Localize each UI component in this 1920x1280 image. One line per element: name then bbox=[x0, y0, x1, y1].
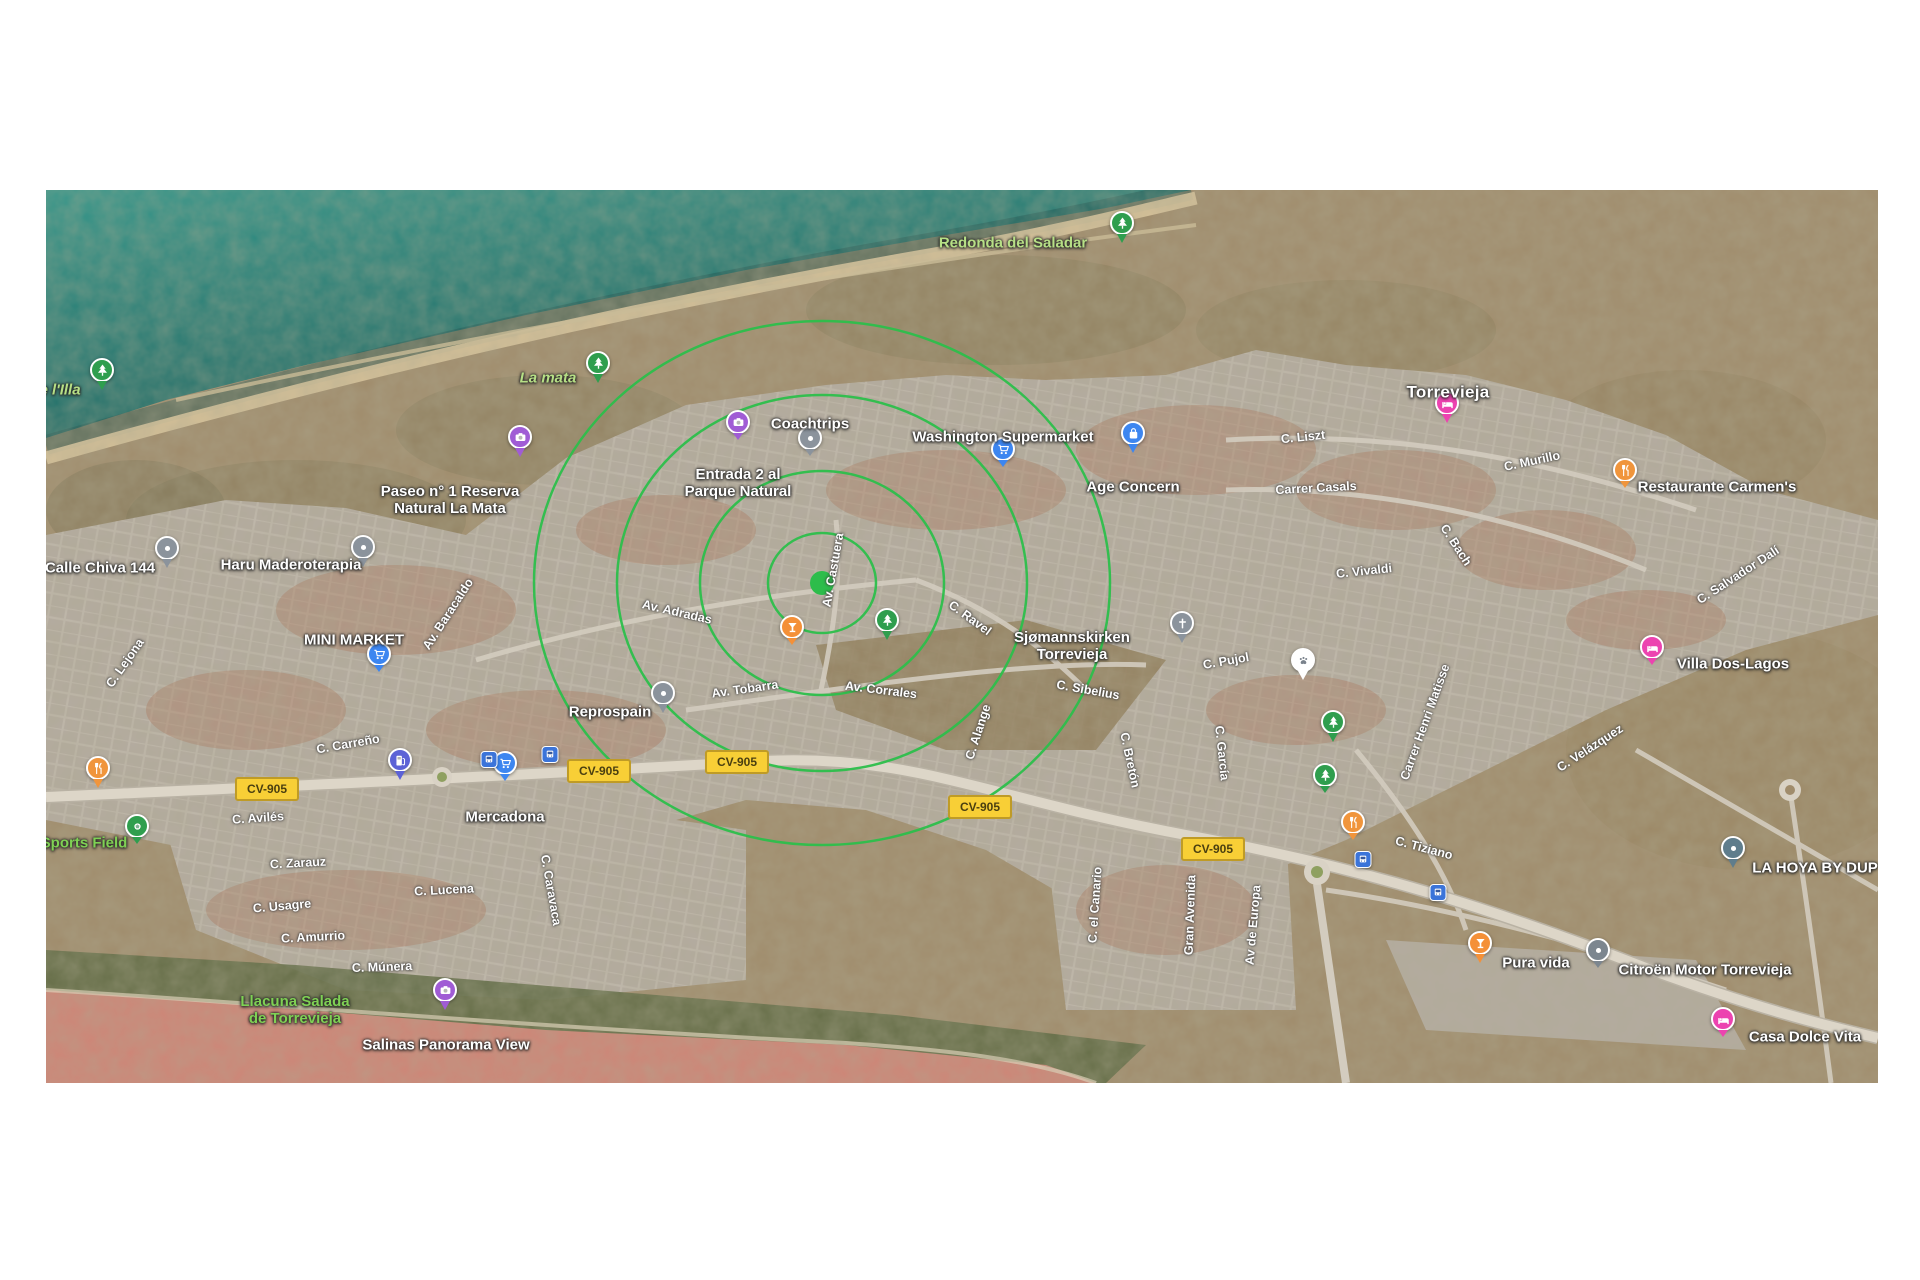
salinas-panorama-view-label[interactable]: Salinas Panorama View bbox=[362, 1037, 529, 1054]
bed-icon bbox=[1711, 1007, 1735, 1031]
tree-icon bbox=[90, 358, 114, 382]
bus-marker[interactable] bbox=[481, 751, 498, 768]
tree-marker[interactable] bbox=[875, 608, 899, 640]
fuel-icon bbox=[388, 748, 412, 772]
e-l-illa-label[interactable]: e l'Illa bbox=[46, 382, 81, 399]
bed-marker[interactable] bbox=[1640, 635, 1664, 665]
label-line: Sports Field bbox=[46, 835, 127, 852]
label-line: Natural La Mata bbox=[381, 500, 520, 517]
coachtrips-label[interactable]: Coachtrips bbox=[771, 416, 849, 433]
restaurant-icon bbox=[1341, 810, 1365, 834]
la-hoya-label[interactable]: LA HOYA BY DUP bbox=[1752, 860, 1878, 877]
citroen-motor-label[interactable]: Citroën Motor Torrevieja bbox=[1618, 962, 1791, 979]
paw-icon bbox=[1291, 648, 1315, 672]
label-line: Citroën Motor Torrevieja bbox=[1618, 962, 1791, 979]
dot-icon bbox=[651, 681, 675, 705]
label-line: Entrada 2 al bbox=[685, 466, 792, 483]
villa-dos-lagos-label[interactable]: Villa Dos-Lagos bbox=[1677, 656, 1789, 673]
marker-tail bbox=[1117, 234, 1127, 243]
label-line: de Torrevieja bbox=[240, 1010, 349, 1027]
route-shield-cv905: CV-905 bbox=[235, 777, 299, 801]
label-line: Casa Dolce Vita bbox=[1749, 1029, 1861, 1046]
tree-marker[interactable] bbox=[1110, 211, 1134, 243]
marker-tail bbox=[1647, 658, 1657, 665]
restaurant-marker[interactable] bbox=[1613, 458, 1637, 488]
marker-tail bbox=[658, 704, 668, 713]
bus-icon bbox=[1355, 851, 1372, 868]
torrevieja-city-label[interactable]: Torrevieja bbox=[1406, 384, 1489, 401]
marker-tail bbox=[132, 837, 142, 844]
label-line: Torrevieja bbox=[1014, 646, 1130, 663]
screenshot-page: C. LisztCarrer CasalsC. MurilloC. BachC.… bbox=[0, 0, 1920, 1280]
satellite-map[interactable]: C. LisztCarrer CasalsC. MurilloC. BachC.… bbox=[46, 190, 1878, 1083]
marker-tail bbox=[374, 665, 384, 672]
bus-icon bbox=[481, 751, 498, 768]
ball-marker[interactable] bbox=[125, 814, 149, 844]
tree-marker[interactable] bbox=[1321, 710, 1345, 742]
ball-icon bbox=[125, 814, 149, 838]
label-line: LA HOYA BY DUP bbox=[1752, 860, 1878, 877]
calle-chiva-144-label[interactable]: Calle Chiva 144 bbox=[46, 560, 155, 577]
label-line: Restaurante Carmen's bbox=[1638, 479, 1797, 496]
marker-tail bbox=[593, 374, 603, 383]
label-line: Paseo n° 1 Reserva bbox=[381, 483, 520, 500]
tree-icon bbox=[875, 608, 899, 632]
sjomannskirken-label[interactable]: SjømannskirkenTorrevieja bbox=[1014, 629, 1130, 663]
bar-icon bbox=[1468, 931, 1492, 955]
age-concern-label[interactable]: Age Concern bbox=[1086, 479, 1179, 496]
marker-tail bbox=[440, 1001, 450, 1010]
camera-icon bbox=[508, 425, 532, 449]
bag-icon bbox=[1121, 421, 1145, 445]
marker-tail bbox=[500, 774, 510, 781]
marker-tail bbox=[1128, 444, 1138, 453]
tree-marker[interactable] bbox=[586, 351, 610, 383]
camera-marker[interactable] bbox=[726, 410, 750, 440]
church-marker[interactable] bbox=[1170, 611, 1194, 643]
camera-icon bbox=[726, 410, 750, 434]
label-line: Reprospain bbox=[569, 704, 652, 721]
marker-tail bbox=[1348, 833, 1358, 840]
route-shield-cv905: CV-905 bbox=[1181, 837, 1245, 861]
fuel-marker[interactable] bbox=[388, 748, 412, 780]
sports-field-label[interactable]: Sports Field bbox=[46, 835, 127, 852]
label-line: Llacuna Salada bbox=[240, 993, 349, 1010]
bar-marker[interactable] bbox=[1468, 931, 1492, 963]
camera-icon bbox=[433, 978, 457, 1002]
marker-tail bbox=[1718, 1030, 1728, 1037]
casa-dolce-vita-label[interactable]: Casa Dolce Vita bbox=[1749, 1029, 1861, 1046]
dot-marker[interactable] bbox=[155, 536, 179, 568]
label-line: Sjømannskirken bbox=[1014, 629, 1130, 646]
marker-tail bbox=[1177, 634, 1187, 643]
label-line: Redonda del Saladar bbox=[939, 235, 1087, 252]
marker-tail bbox=[97, 381, 107, 390]
marker-tail bbox=[1298, 671, 1308, 680]
paw-marker[interactable] bbox=[1291, 648, 1315, 680]
bed-marker[interactable] bbox=[1711, 1007, 1735, 1037]
paseo-reserva-label[interactable]: Paseo n° 1 ReservaNatural La Mata bbox=[381, 483, 520, 517]
restaurante-carmens-label[interactable]: Restaurante Carmen's bbox=[1638, 479, 1797, 496]
dot-icon bbox=[1721, 836, 1745, 860]
marker-tail bbox=[1442, 414, 1452, 423]
dot-icon bbox=[351, 535, 375, 559]
dot-marker[interactable] bbox=[651, 681, 675, 713]
church-icon bbox=[1170, 611, 1194, 635]
bag-marker[interactable] bbox=[1121, 421, 1145, 453]
tree-icon bbox=[586, 351, 610, 375]
dot-marker[interactable] bbox=[1586, 938, 1610, 968]
bar-marker[interactable] bbox=[780, 615, 804, 645]
label-line: Torrevieja bbox=[1406, 384, 1489, 401]
camera-marker[interactable] bbox=[433, 978, 457, 1010]
bed-icon bbox=[1640, 635, 1664, 659]
reprospain-label[interactable]: Reprospain bbox=[569, 704, 652, 721]
route-shield-cv905: CV-905 bbox=[567, 759, 631, 783]
road-label: C. Zarauz bbox=[270, 855, 327, 872]
label-line: Washington Supermarket bbox=[912, 429, 1093, 446]
marker-tail bbox=[733, 433, 743, 440]
road-label: C. Múnera bbox=[352, 959, 413, 975]
entrada-parque-natural-label[interactable]: Entrada 2 alParque Natural bbox=[685, 466, 792, 500]
dot-marker[interactable] bbox=[1721, 836, 1745, 868]
label-line: Pura vida bbox=[1502, 955, 1570, 972]
route-shield-cv905: CV-905 bbox=[948, 795, 1012, 819]
redonda-del-saladar-label[interactable]: Redonda del Saladar bbox=[939, 235, 1087, 252]
marker-tail bbox=[395, 771, 405, 780]
mini-market-label[interactable]: MINI MARKET bbox=[304, 632, 404, 649]
tree-icon bbox=[1321, 710, 1345, 734]
bus-marker[interactable] bbox=[1430, 884, 1447, 901]
marker-tail bbox=[882, 631, 892, 640]
bus-icon bbox=[542, 746, 559, 763]
label-line: MINI MARKET bbox=[304, 632, 404, 649]
tree-icon bbox=[1313, 763, 1337, 787]
marker-tail bbox=[1475, 954, 1485, 963]
tree-marker[interactable] bbox=[90, 358, 114, 390]
label-line: La mata bbox=[520, 370, 577, 387]
tree-icon bbox=[1110, 211, 1134, 235]
marker-tail bbox=[1593, 961, 1603, 968]
bus-marker[interactable] bbox=[542, 746, 559, 763]
marker-tail bbox=[1328, 733, 1338, 742]
marker-tail bbox=[93, 779, 103, 788]
label-line: Calle Chiva 144 bbox=[46, 560, 155, 577]
dot-icon bbox=[1586, 938, 1610, 962]
llacuna-salada-label[interactable]: Llacuna Saladade Torrevieja bbox=[240, 993, 349, 1027]
road-label: Gran Avenida bbox=[1182, 875, 1199, 956]
washington-supermarket-label[interactable]: Washington Supermarket bbox=[912, 429, 1093, 446]
label-line: Mercadona bbox=[465, 809, 544, 826]
label-line: Age Concern bbox=[1086, 479, 1179, 496]
label-line: e l'Illa bbox=[46, 382, 81, 399]
restaurant-icon bbox=[86, 756, 110, 780]
bus-marker[interactable] bbox=[1355, 851, 1372, 868]
marker-tail bbox=[787, 638, 797, 645]
label-line: Haru Maderoterapia bbox=[221, 557, 362, 574]
route-shield-cv905: CV-905 bbox=[705, 750, 769, 774]
marker-tail bbox=[515, 448, 525, 457]
marker-tail bbox=[998, 460, 1008, 467]
label-line: Coachtrips bbox=[771, 416, 849, 433]
marker-tail bbox=[1728, 859, 1738, 868]
bar-icon bbox=[780, 615, 804, 639]
haru-maderoterapia-label[interactable]: Haru Maderoterapia bbox=[221, 557, 362, 574]
marker-tail bbox=[162, 559, 172, 568]
mercadona-label[interactable]: Mercadona bbox=[465, 809, 544, 826]
marker-tail bbox=[805, 449, 815, 456]
la-mata-label[interactable]: La mata bbox=[520, 370, 577, 387]
restaurant-marker[interactable] bbox=[1341, 810, 1365, 840]
marker-tail bbox=[1620, 481, 1630, 488]
restaurant-marker[interactable] bbox=[86, 756, 110, 788]
restaurant-icon bbox=[1613, 458, 1637, 482]
label-line: Villa Dos-Lagos bbox=[1677, 656, 1789, 673]
pura-vida-label[interactable]: Pura vida bbox=[1502, 955, 1570, 972]
label-line: Parque Natural bbox=[685, 483, 792, 500]
label-line: Salinas Panorama View bbox=[362, 1037, 529, 1054]
marker-tail bbox=[1320, 786, 1330, 793]
bus-icon bbox=[1430, 884, 1447, 901]
tree-marker[interactable] bbox=[1313, 763, 1337, 793]
dot-icon bbox=[155, 536, 179, 560]
camera-marker[interactable] bbox=[508, 425, 532, 457]
